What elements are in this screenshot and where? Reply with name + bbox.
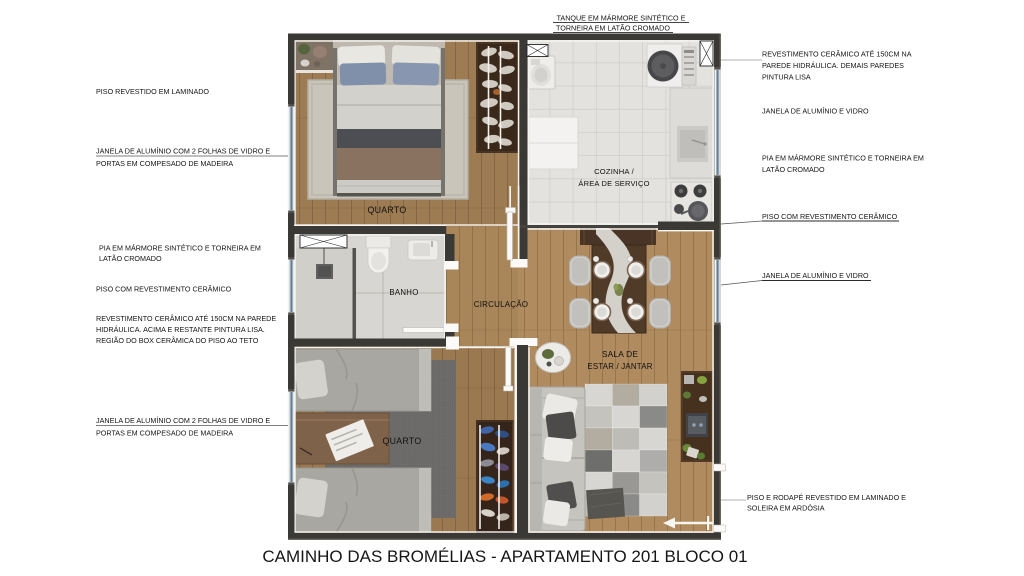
svg-text:BANHO: BANHO (389, 288, 418, 297)
svg-text:COZINHA /: COZINHA / (594, 167, 634, 176)
svg-text:PISO E RODAPÉ REVESTIDO EM LAM: PISO E RODAPÉ REVESTIDO EM LAMINADO E (747, 493, 906, 502)
svg-text:REVESTIMENTO CERÂMICO ATÉ 150C: REVESTIMENTO CERÂMICO ATÉ 150CM NA (762, 50, 912, 59)
svg-text:PIA EM MÁRMORE SINTÉTICO E TOR: PIA EM MÁRMORE SINTÉTICO E TORNEIRA EM (99, 244, 261, 253)
svg-text:JANELA DE ALUMÍNIO COM 2 FOLHA: JANELA DE ALUMÍNIO COM 2 FOLHAS DE VIDRO… (96, 147, 270, 156)
svg-text:PISO COM REVESTIMENTO CERÂMICO: PISO COM REVESTIMENTO CERÂMICO (762, 212, 898, 221)
svg-text:JANELA DE ALUMÍNIO E VIDRO: JANELA DE ALUMÍNIO E VIDRO (762, 107, 869, 116)
svg-text:CIRCULAÇÃO: CIRCULAÇÃO (474, 300, 528, 309)
svg-text:ESTAR / JANTAR: ESTAR / JANTAR (587, 362, 652, 371)
svg-text:PISO COM REVESTIMENTO CERÂMICO: PISO COM REVESTIMENTO CERÂMICO (96, 285, 232, 294)
svg-text:JANELA DE ALUMÍNIO E VIDRO: JANELA DE ALUMÍNIO E VIDRO (762, 271, 869, 280)
svg-text:REGIÃO DO BOX CERÂMICA DO PISO: REGIÃO DO BOX CERÂMICA DO PISO AO TETO (96, 336, 259, 345)
svg-text:TANQUE EM MÁRMORE SINTÉTICO E: TANQUE EM MÁRMORE SINTÉTICO E (557, 14, 686, 23)
svg-text:TORNEIRA EM LATÃO CROMADO: TORNEIRA EM LATÃO CROMADO (556, 23, 670, 32)
svg-text:JANELA DE ALUMÍNIO COM 2 FOLHA: JANELA DE ALUMÍNIO COM 2 FOLHAS DE VIDRO… (96, 416, 270, 425)
svg-text:PAREDE HIDRÁULICA. DEMAIS PARE: PAREDE HIDRÁULICA. DEMAIS PAREDES (762, 61, 904, 70)
svg-text:CAMINHO DAS BROMÉLIAS - APARTA: CAMINHO DAS BROMÉLIAS - APARTAMENTO 201 … (262, 547, 747, 566)
svg-text:ÁREA DE SERVIÇO: ÁREA DE SERVIÇO (578, 179, 649, 188)
svg-text:HIDRÁULICA. ACIMA E RESTANTE P: HIDRÁULICA. ACIMA E RESTANTE PINTURA LIS… (96, 325, 265, 334)
svg-text:QUARTO: QUARTO (367, 205, 406, 215)
svg-text:PIA EM MÁRMORE SINTÉTICO E TOR: PIA EM MÁRMORE SINTÉTICO E TORNEIRA EM (762, 154, 924, 163)
svg-text:PORTAS EM COMPESADO DE MADEIRA: PORTAS EM COMPESADO DE MADEIRA (96, 429, 233, 438)
svg-text:SOLEIRA EM ARDÓSIA: SOLEIRA EM ARDÓSIA (747, 504, 825, 513)
svg-text:REVESTIMENTO CERÂMICO ATÉ 150C: REVESTIMENTO CERÂMICO ATÉ 150CM NA PARED… (96, 314, 276, 323)
svg-text:LATÃO CROMADO: LATÃO CROMADO (762, 165, 825, 174)
svg-text:QUARTO: QUARTO (382, 436, 421, 446)
svg-text:PISO REVESTIDO EM LAMINADO: PISO REVESTIDO EM LAMINADO (96, 87, 209, 96)
svg-text:SALA DE: SALA DE (602, 349, 639, 359)
svg-text:PORTAS EM COMPESADO DE MADEIRA: PORTAS EM COMPESADO DE MADEIRA (96, 159, 233, 168)
svg-text:PINTURA LISA: PINTURA LISA (762, 73, 811, 82)
svg-text:LATÃO CROMADO: LATÃO CROMADO (99, 254, 162, 263)
